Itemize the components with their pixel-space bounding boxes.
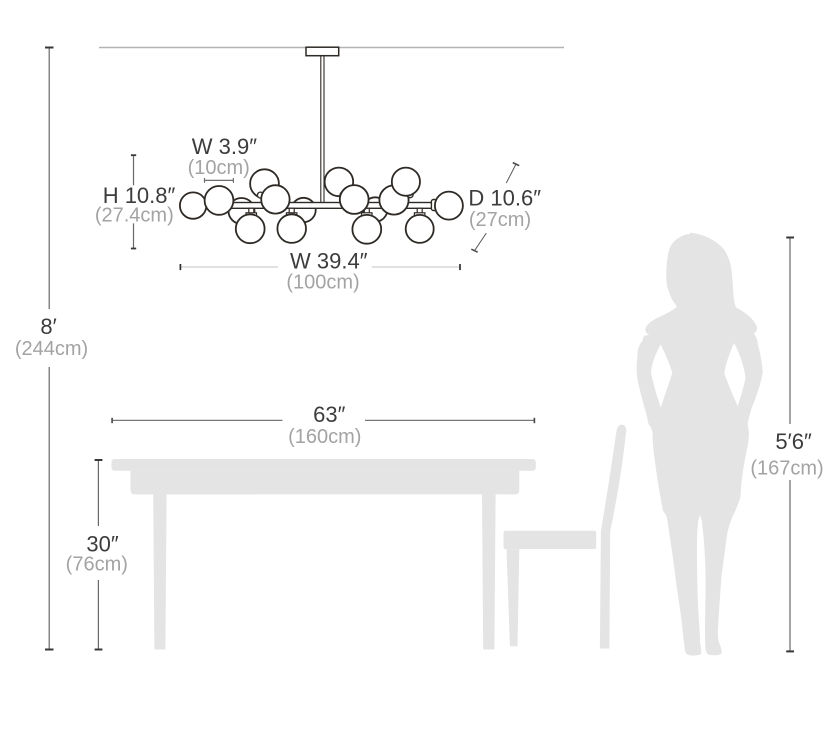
svg-text:5′6″: 5′6″ (775, 429, 812, 454)
svg-text:W 39.4″: W 39.4″ (290, 249, 368, 274)
svg-text:(167cm): (167cm) (750, 458, 823, 480)
svg-text:(100cm): (100cm) (286, 272, 359, 294)
svg-text:D 10.6″: D 10.6″ (468, 186, 541, 211)
svg-text:(27.4cm): (27.4cm) (95, 205, 174, 227)
svg-text:(160cm): (160cm) (288, 426, 361, 448)
svg-text:63″: 63″ (313, 402, 345, 427)
svg-text:(76cm): (76cm) (66, 554, 128, 576)
svg-text:(10cm): (10cm) (188, 157, 250, 179)
svg-text:(27cm): (27cm) (469, 209, 531, 231)
svg-text:(244cm): (244cm) (15, 338, 88, 360)
svg-text:8′: 8′ (40, 314, 56, 339)
svg-text:W 3.9″: W 3.9″ (192, 134, 257, 159)
